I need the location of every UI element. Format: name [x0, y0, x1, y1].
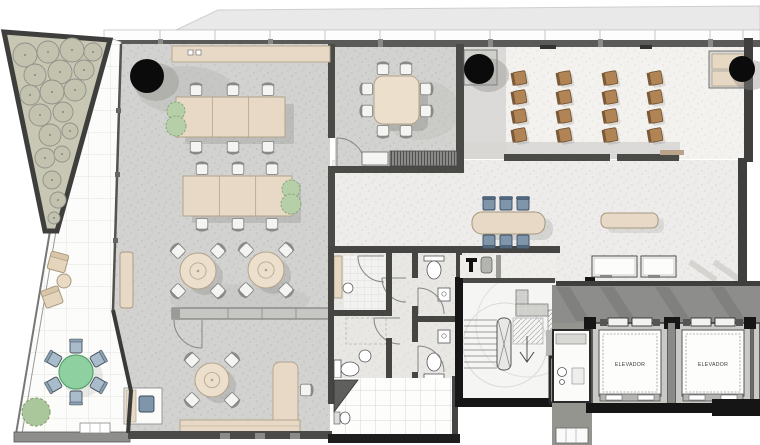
floor-plan: ELEVADORELEVADOR: [0, 0, 760, 445]
dining-top-counter: [172, 46, 330, 62]
tree-icon: [84, 43, 102, 61]
white-chair: [266, 162, 278, 174]
tree-icon: [54, 146, 70, 162]
white-chair: [420, 83, 432, 95]
elevator-label: ELEVADOR: [698, 362, 728, 368]
tree-icon: [53, 102, 73, 122]
toilet: [427, 261, 441, 279]
white-chair: [377, 62, 389, 74]
sink: [343, 283, 353, 293]
sink: [438, 330, 450, 343]
wall-board: [640, 45, 652, 49]
bath-counter: [334, 256, 342, 298]
office-desk: [273, 362, 298, 428]
tree-icon: [40, 80, 64, 104]
tree-icon: [48, 212, 60, 224]
floor-plan-page: ELEVADORELEVADOR: [0, 0, 760, 445]
elevator-bank: ELEVADORELEVADOR: [592, 318, 760, 405]
toilet-tank: [334, 360, 341, 378]
white-chair: [232, 162, 244, 174]
waste-bin: [481, 257, 492, 273]
blue-chair: [483, 235, 496, 249]
blue-chair: [517, 235, 530, 249]
tree-icon: [39, 124, 61, 146]
drinking-fountain-icon: [466, 258, 477, 262]
tree-icon: [64, 79, 86, 101]
white-chair: [300, 384, 312, 396]
terrace-grate: [80, 423, 110, 433]
white-chair: [420, 105, 432, 117]
white-chair: [190, 83, 202, 95]
tree-icon: [43, 171, 61, 189]
elevator-1: ELEVADOR: [592, 318, 668, 405]
elevator-2: ELEVADOR: [675, 318, 751, 405]
terrace-chair: [70, 391, 83, 405]
office-blue-chair: [139, 396, 154, 412]
terrace-edge-wall: [14, 432, 130, 442]
wood-wall-panel: [660, 150, 684, 155]
tree-icon: [37, 41, 59, 63]
white-chair: [262, 141, 274, 153]
white-chair: [360, 105, 372, 117]
white-chair: [377, 125, 389, 137]
tree-icon: [50, 192, 66, 208]
fixture: [340, 412, 350, 424]
service-room: [328, 376, 460, 443]
terrace-table: [59, 355, 93, 389]
white-chair: [266, 218, 278, 230]
white-chair: [196, 218, 208, 230]
white-chair: [232, 218, 244, 230]
white-chair: [227, 83, 239, 95]
hall-alcove: [460, 255, 556, 278]
white-chair: [196, 162, 208, 174]
blue-chair: [483, 197, 496, 211]
sink: [359, 350, 371, 362]
terrace-chair: [70, 339, 83, 353]
dining-wall-bench: [120, 252, 133, 308]
tree-icon: [29, 104, 51, 126]
white-chair: [400, 62, 412, 74]
elevator-3: [753, 323, 760, 405]
tree-icon: [74, 60, 94, 80]
tree-icon: [20, 85, 40, 105]
plant-icon: [281, 180, 301, 214]
lounge-chair: [47, 251, 69, 273]
roof-band: [176, 6, 760, 30]
white-chair: [190, 141, 202, 153]
tree-icon: [62, 123, 78, 139]
hall-bench: [601, 213, 664, 233]
white-chair: [262, 83, 274, 95]
bush-icon: [22, 398, 50, 426]
elevator-label: ELEVADOR: [615, 362, 645, 368]
tree-icon: [24, 64, 46, 86]
white-chair: [227, 141, 239, 153]
hall-cabinets: [592, 256, 676, 278]
tree-icon: [13, 43, 37, 67]
white-chair: [400, 125, 412, 137]
white-chair: [360, 83, 372, 95]
tree-icon: [60, 38, 84, 62]
blue-chair: [517, 197, 530, 211]
toilet: [341, 362, 359, 376]
meeting-credenza: [362, 152, 388, 165]
side-table: [57, 274, 71, 288]
tree-icon: [35, 148, 55, 168]
blue-chair: [500, 197, 513, 211]
wall-board: [540, 45, 556, 49]
blue-chair: [500, 235, 513, 249]
plant-icon: [166, 102, 186, 136]
